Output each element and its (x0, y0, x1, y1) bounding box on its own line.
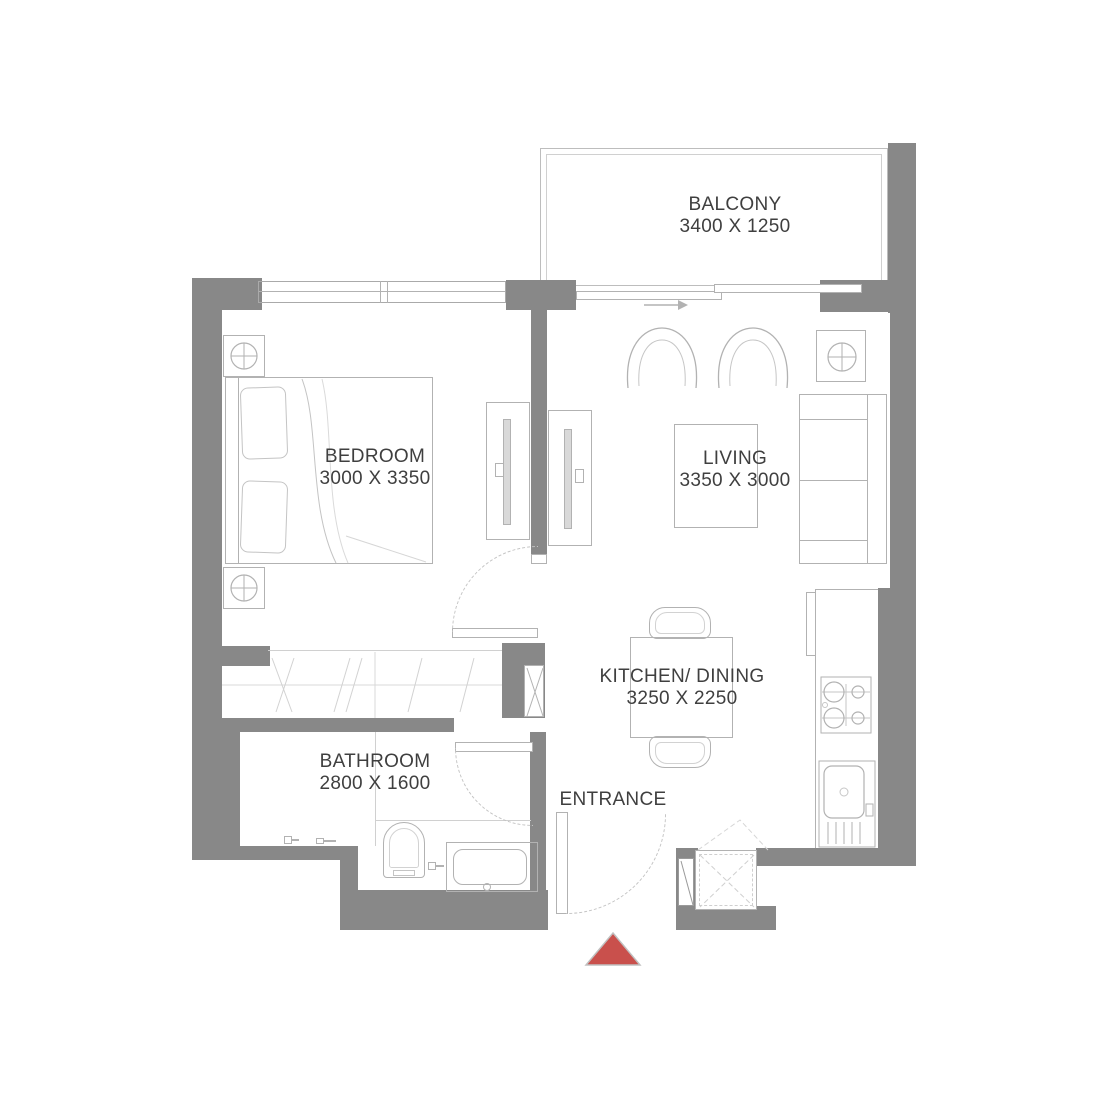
room-label-kitchen-dining: KITCHEN/ DINING 3250 X 2250 (600, 666, 765, 710)
bidet-tap-spout (436, 865, 444, 867)
cabinet-knob (575, 469, 584, 483)
vent-diagonal (679, 859, 695, 907)
tall-cabinet (806, 592, 816, 656)
dining-chair-inner (655, 612, 705, 634)
toilet-bowl-inner (389, 828, 419, 868)
sofa-back-line (867, 395, 868, 563)
direction-arrow-icon (644, 297, 688, 313)
shaft-dashed-peak (694, 816, 774, 852)
lamp-icon (820, 335, 864, 379)
kitchen-counter-top (815, 589, 878, 590)
armchair (622, 324, 702, 390)
sofa (799, 394, 887, 564)
duct-x-icon (525, 666, 545, 718)
bathtub-tap (483, 883, 491, 891)
vanity-tap (284, 836, 292, 844)
room-name: BALCONY (679, 194, 790, 216)
room-name: BEDROOM (319, 446, 430, 468)
sliding-door-panel (714, 284, 862, 293)
vanity-tap-spout (292, 839, 299, 841)
wall-segment (340, 890, 548, 930)
room-size: 3000 X 3350 (319, 468, 430, 490)
room-size: 2800 X 1600 (319, 773, 430, 795)
wardrobe (486, 402, 530, 540)
wall-segment (888, 143, 916, 313)
closet-hanging-marks (222, 652, 502, 718)
room-label-bedroom: BEDROOM 3000 X 3350 (319, 446, 430, 490)
entrance-label: ENTRANCE (560, 789, 667, 811)
wall-segment (506, 280, 576, 310)
dining-chair (649, 736, 711, 768)
bathtub-surround (446, 842, 538, 892)
sofa-seat-divider (800, 480, 867, 481)
window-divider (380, 281, 381, 303)
armchair (712, 324, 794, 390)
room-label-bathroom: BATHROOM 2800 X 1600 (319, 751, 430, 795)
room-name: BATHROOM (319, 751, 430, 773)
floor-plan: BALCONY 3400 X 1250 BEDROOM 3000 X 3350 … (0, 0, 1100, 1100)
dining-chair-inner (655, 742, 705, 764)
room-size: 3350 X 3000 (679, 470, 790, 492)
wall-segment (340, 846, 358, 894)
wall-segment (192, 718, 454, 732)
vent-panel (678, 858, 694, 906)
room-label-living: LIVING 3350 X 3000 (679, 448, 790, 492)
bathroom-door-swing-arc (455, 748, 533, 826)
lamp-icon (224, 568, 264, 608)
sofa-armrest-line (800, 540, 867, 541)
wall-segment (890, 312, 916, 588)
tv-cabinet (548, 410, 592, 546)
room-label-balcony: BALCONY 3400 X 1250 (679, 194, 790, 238)
wall-segment (192, 718, 240, 848)
bidet-tap (428, 862, 436, 870)
sofa-armrest-line (800, 419, 867, 420)
room-size: 3250 X 2250 (600, 688, 765, 710)
stove-icon (820, 676, 872, 734)
wall-segment (192, 278, 222, 718)
room-name: KITCHEN/ DINING (600, 666, 765, 688)
wall-segment (756, 848, 916, 866)
entrance-marker-icon (583, 930, 643, 968)
side-table (816, 330, 866, 382)
bathtub (453, 849, 527, 885)
window-mid-line (259, 291, 505, 292)
sink-icon (818, 760, 876, 848)
vanity-tap-spout (324, 840, 336, 842)
nightstand (223, 567, 265, 609)
wall-segment (878, 588, 916, 850)
toilet-cistern (393, 870, 415, 876)
wall-segment (531, 310, 547, 554)
toilet (383, 822, 425, 878)
entrance-door-swing-arc (566, 814, 666, 914)
vanity-tap (316, 838, 324, 844)
wardrobe-knob (495, 463, 504, 477)
cabinet-handle-bar (564, 429, 572, 529)
lamp-icon (224, 336, 264, 376)
wall-segment (192, 846, 358, 860)
nightstand (223, 335, 265, 377)
closet-front-line (268, 650, 502, 651)
shaft-x-icon (696, 851, 758, 911)
room-size: 3400 X 1250 (679, 216, 790, 238)
dining-chair (649, 607, 711, 639)
shaft-box (695, 850, 757, 910)
room-name: LIVING (679, 448, 790, 470)
wardrobe-handle-bar (503, 419, 511, 525)
bedroom-window (258, 281, 506, 303)
window-divider (387, 281, 388, 303)
bedroom-door-swing-arc (452, 546, 538, 632)
duct-box (524, 665, 544, 717)
